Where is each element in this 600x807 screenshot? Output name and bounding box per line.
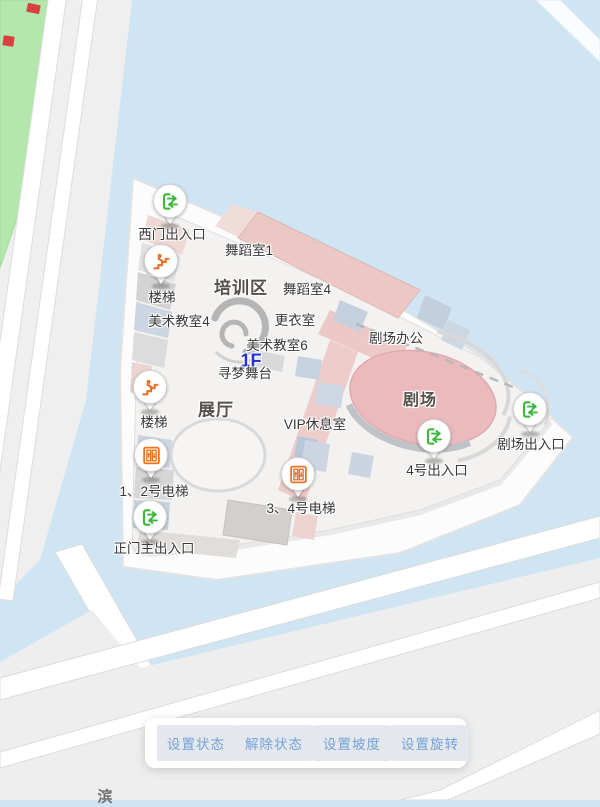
entrance-exit-icon xyxy=(520,399,541,420)
poi-pin-entrance-exit[interactable] xyxy=(513,392,547,426)
poi-pin-elevator[interactable] xyxy=(134,438,168,472)
road-status-marker[interactable] xyxy=(2,35,14,46)
toolbar-button-1[interactable]: 设置状态 xyxy=(157,725,235,761)
indoor-map-page: { "map": { "floor_indicator": "1F", "col… xyxy=(0,0,600,800)
elevator-icon xyxy=(141,445,162,466)
entrance-exit-icon xyxy=(140,507,161,528)
stairs-icon xyxy=(140,377,161,398)
poi-pin-stairs[interactable] xyxy=(144,244,178,278)
entrance-exit-icon xyxy=(160,191,181,212)
toolbar-button-4[interactable]: 设置旋转 xyxy=(391,725,469,761)
poi-pin-entrance-exit[interactable] xyxy=(153,184,187,218)
indoor-map-canvas[interactable] xyxy=(0,0,600,800)
elevator-icon xyxy=(288,464,309,485)
stairs-icon xyxy=(151,251,172,272)
toolbar-button-3[interactable]: 设置坡度 xyxy=(313,725,391,761)
poi-pin-elevator[interactable] xyxy=(281,457,315,491)
poi-pin-entrance-exit[interactable] xyxy=(133,500,167,534)
toolbar-button-2[interactable]: 解除状态 xyxy=(235,725,313,761)
poi-pin-entrance-exit[interactable] xyxy=(417,419,451,453)
poi-pin-stairs[interactable] xyxy=(133,370,167,404)
map-edit-toolbar: 设置状态解除状态设置坡度设置旋转 xyxy=(145,718,467,768)
entrance-exit-icon xyxy=(424,426,445,447)
